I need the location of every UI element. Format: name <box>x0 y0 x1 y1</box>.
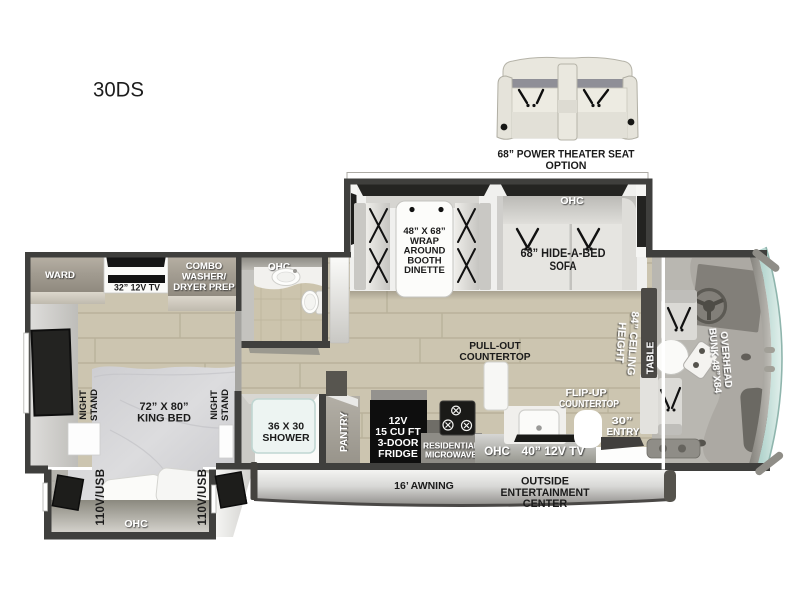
svg-text:STAND: STAND <box>220 389 231 421</box>
svg-text:SOFA: SOFA <box>550 261 577 273</box>
svg-text:OHC: OHC <box>484 446 510 458</box>
svg-text:OHC: OHC <box>124 518 148 530</box>
svg-text:COUNTERTOP: COUNTERTOP <box>459 352 530 363</box>
svg-text:COMBO: COMBO <box>186 261 222 272</box>
svg-text:30DS: 30DS <box>93 78 144 102</box>
svg-text:40” 12V TV: 40” 12V TV <box>522 446 585 458</box>
svg-text:OUTSIDE: OUTSIDE <box>521 476 569 488</box>
svg-text:TABLE: TABLE <box>646 341 657 374</box>
svg-text:COUNTERTOP: COUNTERTOP <box>559 399 619 410</box>
svg-text:16’ AWNING: 16’ AWNING <box>394 480 454 492</box>
svg-text:STAND: STAND <box>89 389 100 421</box>
svg-text:110V/USB: 110V/USB <box>95 469 107 526</box>
svg-text:WARD: WARD <box>45 270 75 281</box>
svg-text:NIGHT: NIGHT <box>209 390 220 420</box>
svg-text:OHC: OHC <box>560 195 584 207</box>
svg-text:WASHER/: WASHER/ <box>182 272 227 283</box>
svg-text:MICROWAVE: MICROWAVE <box>425 450 477 460</box>
svg-text:KING BED: KING BED <box>137 413 191 425</box>
svg-text:32” 12V TV: 32” 12V TV <box>114 283 160 293</box>
svg-text:ENTERTAINMENT: ENTERTAINMENT <box>501 487 590 499</box>
svg-text:68” HIDE-A-BED: 68” HIDE-A-BED <box>521 248 606 260</box>
svg-text:NIGHT: NIGHT <box>78 390 89 420</box>
svg-text:FLIP-UP: FLIP-UP <box>566 388 607 399</box>
svg-text:ENTRY: ENTRY <box>607 426 640 438</box>
svg-text:DINETTE: DINETTE <box>404 265 445 276</box>
svg-text:72” X 80”: 72” X 80” <box>140 401 189 413</box>
svg-text:CENTER: CENTER <box>523 498 568 510</box>
svg-text:DRYER PREP: DRYER PREP <box>173 282 235 293</box>
svg-text:PANTRY: PANTRY <box>339 412 350 452</box>
svg-text:36 X 30: 36 X 30 <box>268 421 304 433</box>
svg-text:110V/USB: 110V/USB <box>197 469 209 526</box>
svg-text:SHOWER: SHOWER <box>262 432 310 444</box>
svg-text:PULL-OUT: PULL-OUT <box>469 341 521 352</box>
svg-text:68” POWER THEATER SEAT: 68” POWER THEATER SEAT <box>498 149 635 161</box>
svg-text:FRIDGE: FRIDGE <box>378 448 418 460</box>
svg-text:OPTION: OPTION <box>546 160 587 172</box>
